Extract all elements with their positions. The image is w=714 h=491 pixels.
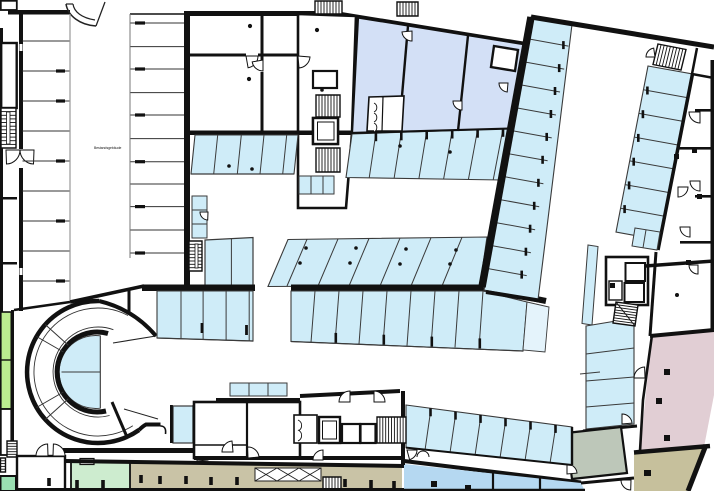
svg-text:Bestandsgebäude: Bestandsgebäude: [94, 146, 121, 150]
